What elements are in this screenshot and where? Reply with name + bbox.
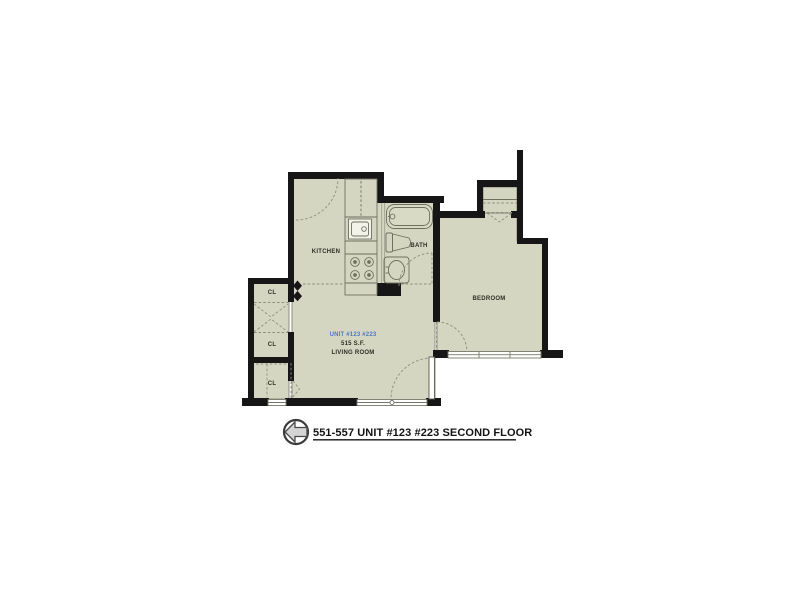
room-label-kitchen: KITCHEN xyxy=(312,249,340,255)
room-label-living-room: LIVING ROOM xyxy=(331,350,374,356)
room-label-bedroom: BEDROOM xyxy=(472,296,505,302)
patio-door-leaf xyxy=(429,357,435,399)
closet-label-2: CL xyxy=(268,342,277,348)
unit-number-label: UNIT #123 #223 xyxy=(330,332,377,338)
north-arrow-icon xyxy=(284,420,308,444)
floor-plan-page: KITCHEN BATH BEDROOM UNIT #123 #223 515 … xyxy=(0,0,800,600)
room-label-bath: BATH xyxy=(410,243,427,249)
room-fill-bedroom-closet xyxy=(483,187,517,213)
bedroom-window xyxy=(448,352,541,359)
living-room-window-long xyxy=(357,400,427,406)
closet-label-1: CL xyxy=(268,290,277,296)
closet-label-3: CL xyxy=(268,381,277,387)
area-label: 515 S.F. xyxy=(341,341,365,347)
floor-plan-canvas: KITCHEN BATH BEDROOM UNIT #123 #223 515 … xyxy=(0,0,800,600)
plan-title: 551-557 UNIT #123 #223 SECOND FLOOR xyxy=(313,427,532,439)
bathtub-icon xyxy=(387,205,433,229)
kitchen-sink xyxy=(349,219,372,239)
room-fill-bedroom xyxy=(437,213,544,352)
living-room-window-small xyxy=(268,400,286,406)
